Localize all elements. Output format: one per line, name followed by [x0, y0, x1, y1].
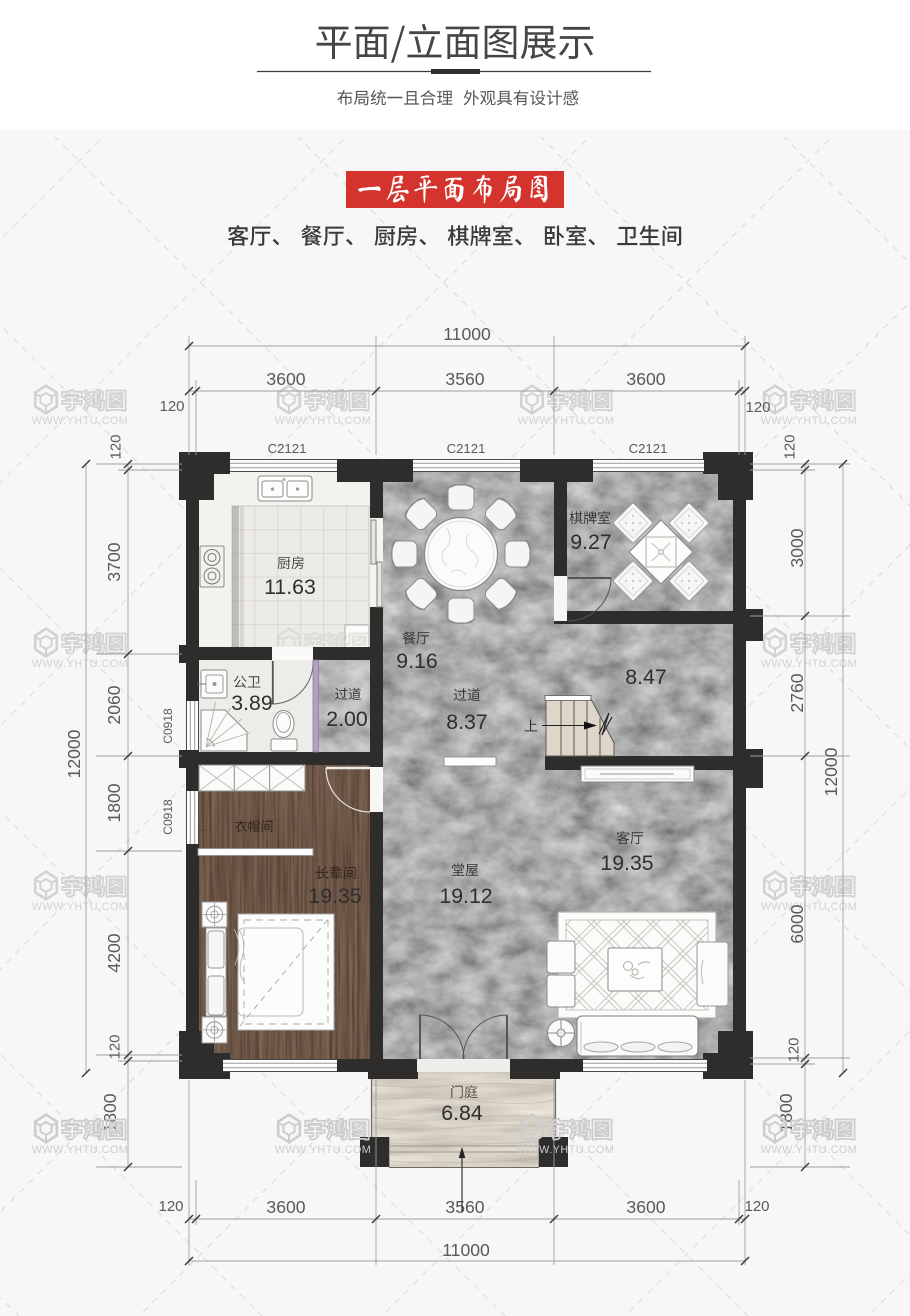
svg-text:19.35: 19.35 — [308, 884, 361, 908]
svg-text:120: 120 — [158, 1198, 183, 1215]
svg-text:4200: 4200 — [104, 933, 124, 972]
svg-text:9.16: 9.16 — [396, 649, 437, 673]
svg-text:WWW.YHTU.COM: WWW.YHTU.COM — [32, 1144, 129, 1156]
svg-text:2760: 2760 — [787, 673, 807, 712]
svg-text:WWW.YHTU.COM: WWW.YHTU.COM — [518, 415, 615, 427]
svg-text:3600: 3600 — [266, 1197, 305, 1217]
svg-text:WWW.YHTU.COM: WWW.YHTU.COM — [761, 1144, 858, 1156]
svg-text:120: 120 — [744, 1198, 769, 1215]
svg-text:8.37: 8.37 — [446, 710, 487, 734]
svg-text:9.27: 9.27 — [570, 530, 611, 554]
svg-text:8.47: 8.47 — [625, 665, 666, 689]
svg-text:C2121: C2121 — [447, 441, 486, 456]
svg-text:3600: 3600 — [626, 1197, 665, 1217]
svg-text:19.35: 19.35 — [600, 851, 653, 875]
svg-text:120: 120 — [785, 1037, 802, 1062]
svg-text:120: 120 — [107, 434, 124, 459]
svg-text:WWW.YHTU.COM: WWW.YHTU.COM — [275, 415, 372, 427]
svg-text:11000: 11000 — [442, 1240, 490, 1260]
svg-text:3600: 3600 — [266, 369, 305, 389]
svg-text:120: 120 — [745, 399, 770, 416]
svg-text:11.63: 11.63 — [264, 575, 316, 599]
svg-text:C2121: C2121 — [268, 441, 307, 456]
svg-text:WWW.YHTU.COM: WWW.YHTU.COM — [518, 1144, 615, 1156]
svg-text:120: 120 — [159, 398, 184, 415]
svg-text:3560: 3560 — [445, 369, 484, 389]
svg-text:11000: 11000 — [443, 324, 491, 344]
svg-text:12000: 12000 — [64, 729, 84, 778]
svg-text:C0918: C0918 — [161, 799, 175, 835]
svg-text:19.12: 19.12 — [439, 884, 492, 908]
svg-text:3560: 3560 — [445, 1197, 484, 1217]
svg-text:C0918: C0918 — [161, 708, 175, 744]
svg-text:120: 120 — [781, 434, 798, 459]
svg-text:WWW.YHTU.COM: WWW.YHTU.COM — [275, 1144, 372, 1156]
svg-text:WWW.YHTU.COM: WWW.YHTU.COM — [32, 901, 129, 913]
svg-text:WWW.YHTU.COM: WWW.YHTU.COM — [32, 415, 129, 427]
svg-text:1800: 1800 — [104, 783, 124, 822]
svg-text:12000: 12000 — [821, 747, 841, 796]
svg-text:C2121: C2121 — [629, 441, 668, 456]
svg-text:120: 120 — [106, 1034, 123, 1059]
svg-text:2060: 2060 — [104, 685, 124, 724]
svg-text:2.00: 2.00 — [326, 707, 368, 731]
svg-text:3.89: 3.89 — [231, 691, 272, 715]
svg-text:3700: 3700 — [104, 542, 124, 581]
svg-text:WWW.YHTU.COM: WWW.YHTU.COM — [32, 658, 129, 670]
svg-text:6.84: 6.84 — [441, 1101, 483, 1125]
svg-text:3000: 3000 — [787, 528, 807, 567]
svg-text:3600: 3600 — [626, 369, 665, 389]
svg-text:WWW.YHTU.COM: WWW.YHTU.COM — [761, 415, 858, 427]
svg-text:6000: 6000 — [787, 904, 807, 943]
